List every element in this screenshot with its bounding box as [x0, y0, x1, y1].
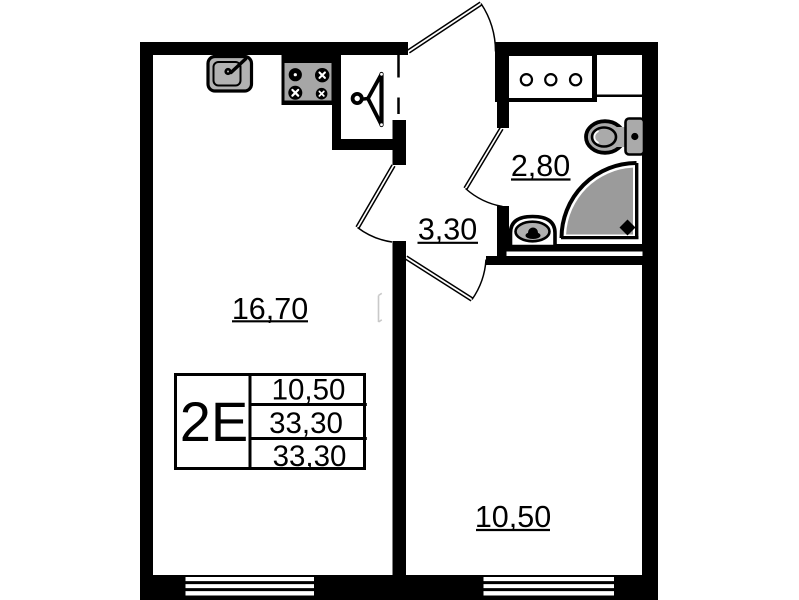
svg-text:2,80: 2,80 — [511, 149, 570, 183]
svg-text:33,30: 33,30 — [273, 440, 347, 473]
svg-text:3,30: 3,30 — [418, 212, 477, 246]
svg-text:10,50: 10,50 — [272, 373, 346, 406]
svg-text:2Е: 2Е — [180, 390, 249, 453]
svg-text:33,30: 33,30 — [269, 407, 343, 440]
